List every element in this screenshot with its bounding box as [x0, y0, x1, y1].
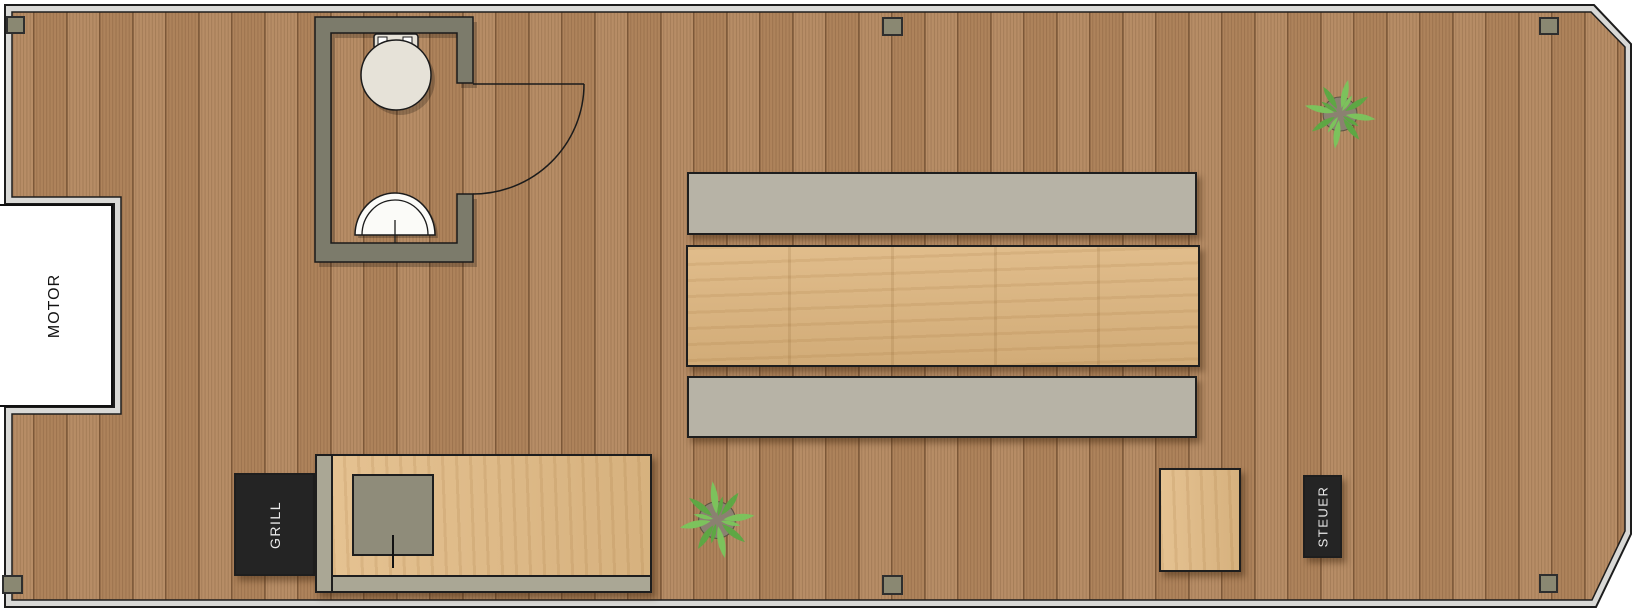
kitchen-counter [315, 454, 652, 593]
counter-front-panel [333, 575, 650, 591]
grill-label: GRILL [267, 501, 283, 549]
dining-table [686, 245, 1200, 367]
steuer-label: STEUER [1315, 486, 1330, 548]
bench-top [687, 172, 1197, 235]
cleat [883, 576, 902, 594]
cleat [7, 17, 24, 33]
cleat [3, 576, 22, 593]
motor-label: MOTOR [46, 273, 64, 337]
kitchen-tap [392, 535, 394, 568]
motor-well: MOTOR [0, 204, 113, 407]
side-table [1159, 468, 1241, 572]
cleat [883, 18, 902, 35]
grill-unit: GRILL [234, 473, 315, 576]
cleat [1540, 575, 1557, 592]
cleat [1540, 18, 1558, 34]
houseboat-floorplan: MOTOR GRILL STEUER [0, 0, 1636, 612]
steering-console: STEUER [1303, 475, 1342, 558]
counter-side-panel [317, 456, 333, 591]
bench-bottom [687, 376, 1197, 438]
